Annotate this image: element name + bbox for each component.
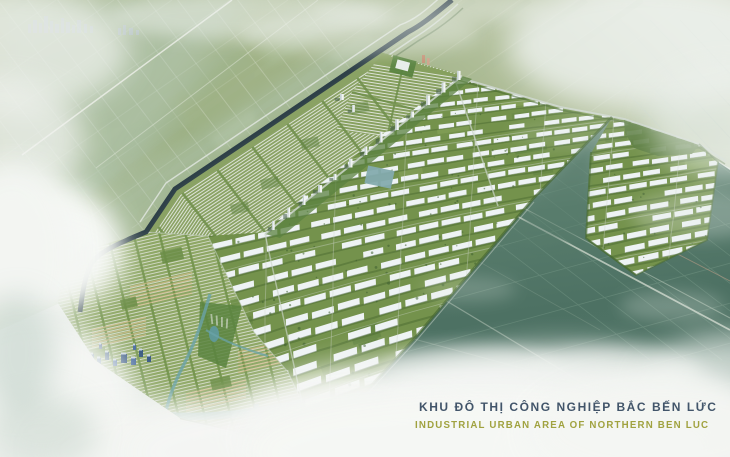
svg-text:INDUSTRIAL URBAN AREA OF NORTH: INDUSTRIAL URBAN AREA OF NORTHERN BEN LU…	[415, 420, 709, 431]
svg-text:KHU ĐÔ THỊ CÔNG NGHIỆP BẮC BẾN: KHU ĐÔ THỊ CÔNG NGHIỆP BẮC BẾN LỨC	[419, 399, 717, 414]
